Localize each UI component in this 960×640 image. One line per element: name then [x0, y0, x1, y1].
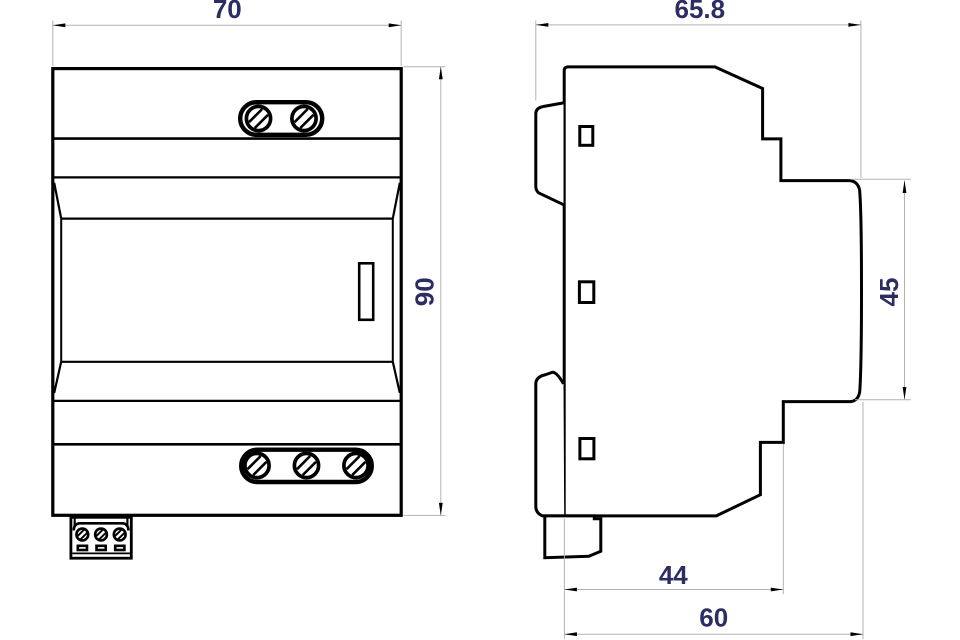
svg-text:65.8: 65.8	[674, 0, 725, 24]
svg-text:44: 44	[659, 560, 688, 590]
svg-text:60: 60	[699, 603, 728, 633]
svg-text:45: 45	[874, 278, 904, 307]
svg-text:70: 70	[213, 0, 242, 24]
svg-text:90: 90	[410, 277, 440, 306]
